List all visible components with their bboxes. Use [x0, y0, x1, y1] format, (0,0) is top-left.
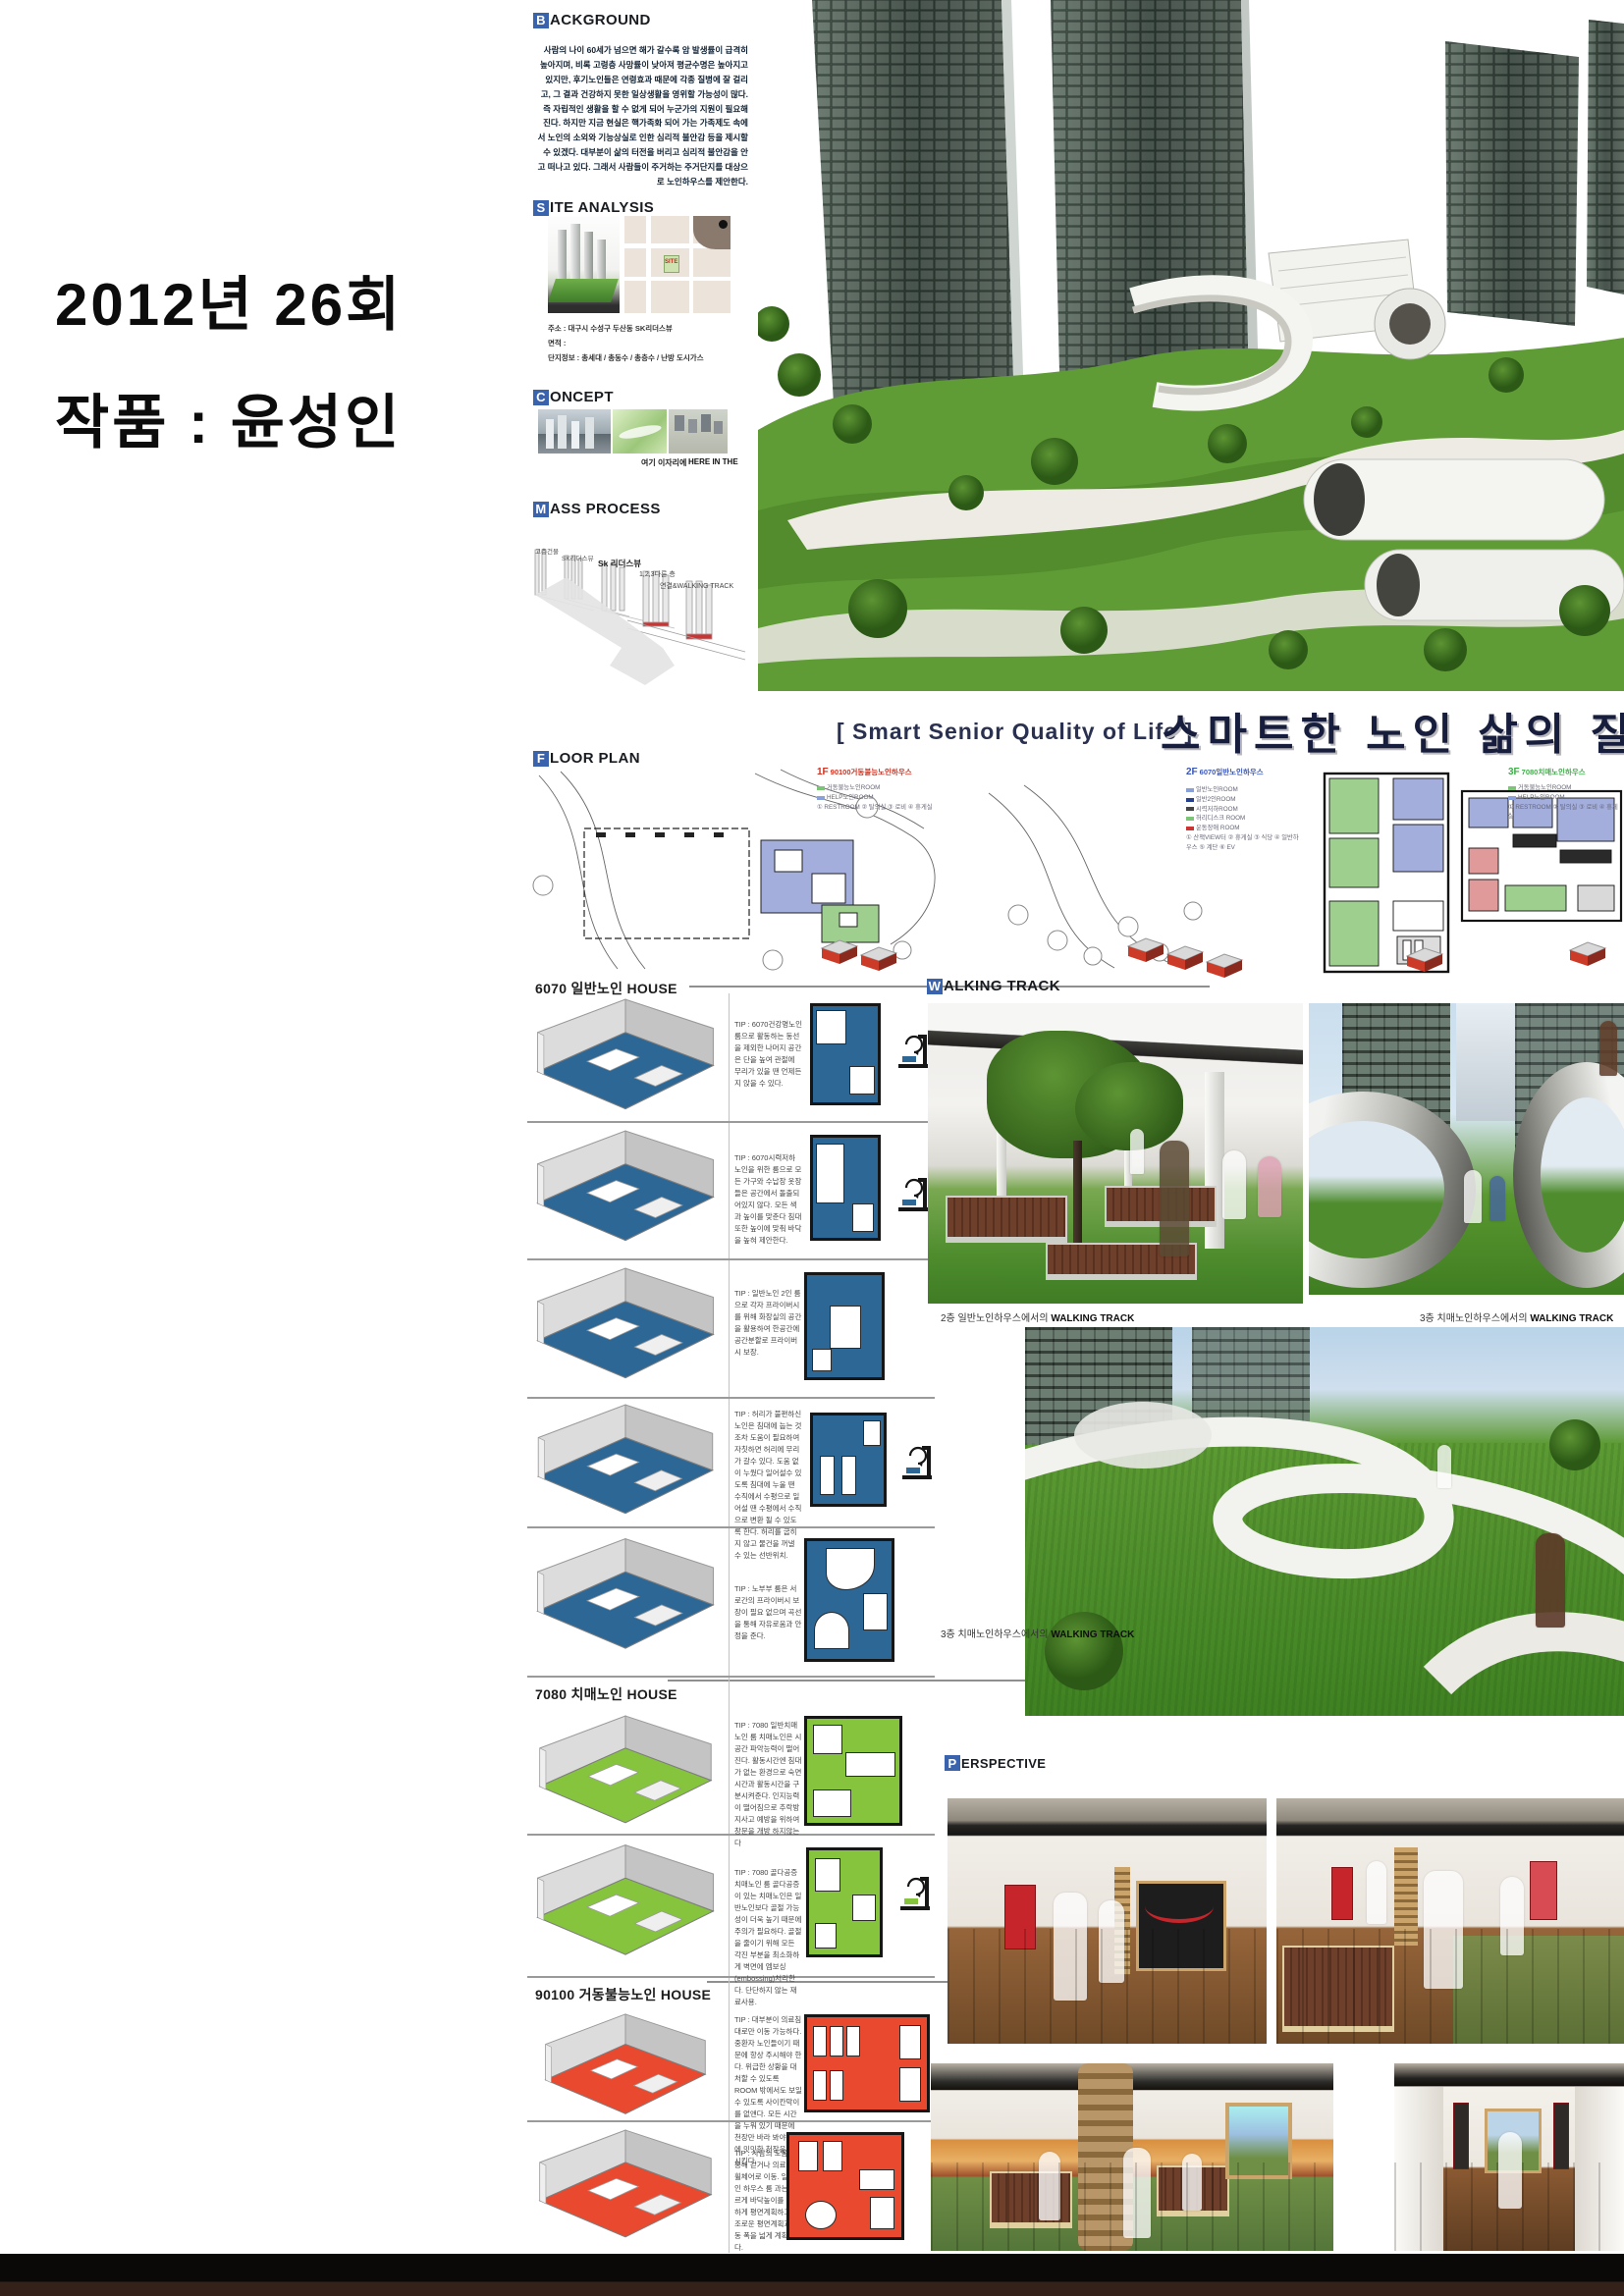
plan-legend-3f: 거동불능노인ROOM HELP노인ROOM ① RESTROOM ② 탈의실 ③… — [1508, 783, 1621, 822]
unit-row-7080-2: TIP : 7080 골다공증 치매노인 룸 골다공증이 있는 치매노인은 일반… — [527, 1836, 935, 1974]
unit-axon-model — [527, 1264, 724, 1387]
mass-label-5: 연결&WALKING TRACK — [660, 581, 733, 591]
unit-axon-model — [527, 2128, 724, 2244]
hero-render — [758, 0, 1624, 691]
perspective-render-4 — [1394, 2063, 1624, 2251]
unit-plan — [804, 2014, 930, 2112]
unit-plan — [804, 1538, 894, 1662]
walking-track-header: W ALKING TRACK — [927, 978, 1060, 994]
unit-row-90100-2: TIP : 사람의 도움을 통해 걷거나 의료침대/휠체어로 이동. 일반노인 … — [527, 2124, 935, 2250]
unit-row-6070-5: TIP : 노부부 룸은 서로간의 프라이버시 보장이 필요 없으며 곡선을 통… — [527, 1528, 935, 1674]
unit-tip: TIP : 일반노인 2인 룸으로 각자 프라이버시를 위해 화장실의 공간을 … — [734, 1288, 803, 1359]
unit-plan — [810, 1135, 881, 1241]
poster-canvas: { "title_block": { "line1": "2012년 26회",… — [0, 0, 1624, 2296]
floor-plan-header: F LOOR PLAN — [533, 750, 640, 767]
unit-plan — [786, 2132, 904, 2240]
unit-plan — [810, 1003, 881, 1105]
walking-track-caption-lawn: 3층 치매노인하우스에서의 WALKING TRACK — [941, 1626, 1206, 1640]
site-marker-label: SITE — [665, 259, 677, 265]
main-title-en: [ Smart Senior Quality of Life ] — [837, 719, 1193, 745]
unit-plan — [810, 1413, 887, 1507]
unit-axon-model — [527, 1840, 724, 1965]
concept-image-1 — [538, 409, 611, 454]
unit-row-90100-1: TIP : 대부분이 의료침대로만 이동 가능하다. 중환자 노인들이기 때문에… — [527, 2008, 935, 2122]
mass-label-4: 1,2,3다른 층 — [639, 569, 676, 579]
main-title-ko: 스마트한 노인 삶의 질 — [1161, 699, 1624, 762]
mass-label-1: 고층건물 — [535, 546, 559, 556]
mass-process-diagram — [527, 518, 779, 693]
plan-label-3f: 3F7080치매노인하우스 — [1508, 767, 1586, 777]
unit-plan — [806, 1847, 883, 1957]
perspective-render-2 — [1276, 1798, 1624, 2044]
concept-caption-en: HERE IN THE — [688, 457, 738, 466]
walking-track-render-3f — [1309, 1003, 1624, 1295]
walking-track-caption-3f: 3층 치매노인하우스에서의 WALKING TRACK — [1420, 1309, 1624, 1324]
footer-band — [0, 2254, 1624, 2296]
unit-axon-model — [527, 1127, 724, 1250]
site-analysis-header: S ITE ANALYSIS — [533, 199, 654, 216]
site-address: 주소 : 대구시 수성구 두산동 SK리더스뷰 — [548, 322, 673, 336]
house-section-title-7080: 7080 치매노인 HOUSE — [535, 1684, 677, 1704]
plan-legend-2f: 일반노인ROOM 일반2인ROOM 시력저하ROOM 허리디스크 ROOM 운동… — [1186, 785, 1304, 852]
unit-section-diagram — [893, 1027, 932, 1070]
floor-plan-drawing — [527, 768, 1624, 980]
unit-tip: TIP : 7080 일반치매노인 룸 치매노인은 시공간 파악능력이 떨어진다… — [734, 1720, 803, 1849]
perspective-render-1 — [947, 1798, 1267, 2044]
plan-label-1f: 1F90100거동불능노인하우스 — [817, 767, 912, 777]
work-title: 작품 : 윤성인 — [55, 375, 402, 460]
concept-cap-icon: C — [533, 390, 549, 405]
perspective-header: P ERSPECTIVE — [945, 1755, 1046, 1771]
unit-section-diagram — [893, 1170, 932, 1213]
floor-plan-mini-models — [822, 938, 1605, 978]
concept-header: C ONCEPT — [533, 389, 614, 405]
background-cap-icon: B — [533, 13, 549, 28]
unit-tip: TIP : 6070시력저하 노인을 위한 룸으로 모든 가구와 수납장 옷장들… — [734, 1152, 803, 1247]
house-section-title-90100: 90100 거동불능노인 HOUSE — [535, 1985, 711, 2004]
concept-image-2 — [613, 409, 667, 454]
unit-tip: TIP : 노부부 룸은 서로간의 프라이버시 보장이 필요 없으며 곡선을 통… — [734, 1583, 803, 1642]
concept-caption-ko: 여기 이자리에 — [641, 457, 686, 468]
unit-axon-model — [527, 1532, 724, 1660]
site-area: 면적 : — [548, 337, 566, 350]
year-title: 2012년 26회 — [55, 257, 403, 343]
unit-section-diagram — [894, 1869, 934, 1912]
site-model-image — [548, 216, 620, 313]
plan-legend-1f: 거동불능노인ROOM HELP노인ROOM ① RESTROOM ② 탈의실 ③… — [817, 783, 935, 812]
site-analysis-cap-icon: S — [533, 200, 549, 216]
walking-track-render-lawn — [1025, 1327, 1624, 1716]
mass-process-cap-icon: M — [533, 502, 549, 517]
mass-label-2: SK리더스뷰 — [562, 553, 594, 562]
mass-label-3: Sk 리더스뷰 — [598, 558, 641, 569]
mass-process-header: M ASS PROCESS — [533, 501, 661, 517]
unit-plan — [804, 1716, 902, 1826]
perspective-render-3 — [931, 2063, 1333, 2251]
walking-track-caption-2f: 2층 일반노인하우스에서의 WALKING TRACK — [941, 1309, 1265, 1324]
floor-plan-cap-icon: F — [533, 751, 549, 767]
unit-row-7080-1: TIP : 7080 일반치매노인 룸 치매노인은 시공간 파악능력이 떨어진다… — [527, 1710, 935, 1834]
walking-track-render-2f — [928, 1003, 1303, 1304]
unit-row-6070-2: TIP : 6070시력저하 노인을 위한 룸으로 모든 가구와 수납장 옷장들… — [527, 1123, 935, 1258]
unit-tip: TIP : 6070건강명노인 룸으로 활동하는 동선을 제외한 나머지 공간은… — [734, 1019, 803, 1090]
unit-row-6070-3: TIP : 일반노인 2인 룸으로 각자 프라이버시를 위해 화장실의 공간을 … — [527, 1260, 935, 1397]
background-paragraph: 사람의 나이 60세가 넘으면 해가 갈수록 암 발생률이 급격히 높아지며, … — [536, 43, 748, 189]
unit-axon-model — [527, 2012, 724, 2120]
unit-row-6070-1: TIP : 6070건강명노인 룸으로 활동하는 동선을 제외한 나머지 공간은… — [527, 993, 935, 1121]
site-complex-info: 단지정보 : 총세대 / 총동수 / 총층수 / 난방 도시가스 — [548, 351, 704, 365]
unit-row-6070-4: TIP : 허리가 불편하신 노인은 침대에 눕는 것 조차 도움이 필요하여 … — [527, 1399, 935, 1526]
plan-label-2f: 2F6070일반노인하우스 — [1186, 767, 1264, 777]
unit-axon-model — [527, 1714, 724, 1830]
unit-plan — [804, 1272, 885, 1380]
unit-axon-model — [527, 997, 724, 1116]
concept-image-3 — [669, 409, 728, 454]
background-header: B ACKGROUND — [533, 12, 651, 28]
walking-track-cap-icon: W — [927, 979, 943, 994]
unit-section-diagram — [896, 1438, 936, 1481]
unit-axon-model — [527, 1403, 724, 1521]
site-map-image: SITE — [624, 216, 731, 313]
unit-tip: TIP : 7080 골다공증 치매노인 룸 골다공증이 있는 치매노인은 일반… — [734, 1867, 803, 2008]
perspective-cap-icon: P — [945, 1755, 960, 1771]
